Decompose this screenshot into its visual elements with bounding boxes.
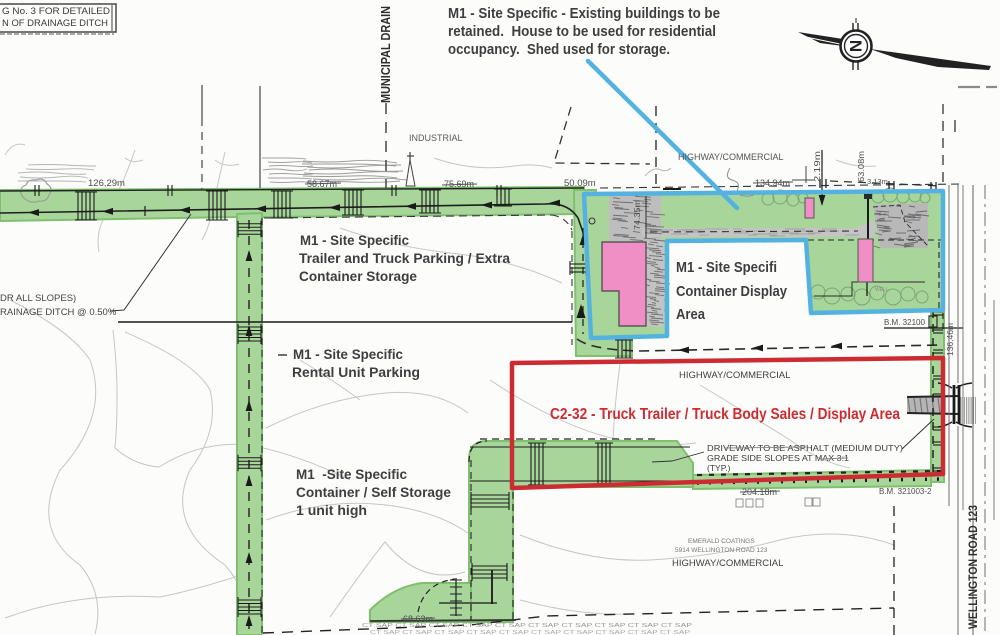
svg-text:GRADE SIDE SLOPES AT MAX 3:1: GRADE SIDE SLOPES AT MAX 3:1 <box>707 453 849 463</box>
svg-text:M1 -Site Specific: M1 -Site Specific <box>296 467 407 482</box>
svg-text:CT SAP CT SAP CT SAP CT SAP CT: CT SAP CT SAP CT SAP CT SAP CT SAP CT SA… <box>370 630 691 635</box>
svg-text:Container Display: Container Display <box>676 283 788 300</box>
svg-text:CT SAP CT SAP CT SAP CT SAP CT: CT SAP CT SAP CT SAP CT SAP CT SAP CT SA… <box>362 623 693 629</box>
svg-text:EMERALD COATINGS: EMERALD COATINGS <box>688 538 755 545</box>
svg-text:74.35m: 74.35m <box>632 200 642 230</box>
svg-text:126,29m: 126,29m <box>88 178 125 189</box>
svg-text:occupancy. Shed used for stor: occupancy. Shed used for storage. <box>448 42 670 58</box>
svg-text:G No. 3 FOR DETAILED: G No. 3 FOR DETAILED <box>2 6 110 17</box>
svg-text:3.13m: 3.13m <box>867 177 888 186</box>
svg-text:Container Storage: Container Storage <box>299 269 417 284</box>
svg-text:Rental Unit Parking: Rental Unit Parking <box>292 365 420 380</box>
svg-text:MUNICIPAL DRAIN: MUNICIPAL DRAIN <box>379 6 393 103</box>
svg-text:Container / Self Storage: Container / Self Storage <box>296 485 451 500</box>
svg-text:M1 - Site Specific: M1 - Site Specific <box>293 347 403 362</box>
svg-text:WELLINGTON ROAD 123: WELLINGTON ROAD 123 <box>968 505 980 629</box>
svg-text:50.09m: 50.09m <box>564 178 596 189</box>
svg-text:HIGHWAY/COMMERCIAL: HIGHWAY/COMMERCIAL <box>672 558 783 569</box>
svg-text:M1 - Site Specifi: M1 - Site Specifi <box>676 259 777 276</box>
svg-text:INDUSTRIAL: INDUSTRIAL <box>409 133 463 143</box>
svg-text:RAINAGE DITCH @ 0.50%: RAINAGE DITCH @ 0.50% <box>0 307 117 318</box>
svg-text:B.M. 32100: B.M. 32100 <box>884 318 925 327</box>
svg-text:N OF DRAINAGE DITCH: N OF DRAINAGE DITCH <box>2 18 108 29</box>
svg-text:M1 - Site Specific: M1 - Site Specific <box>300 233 409 248</box>
svg-text:63.08m: 63.08m <box>856 151 866 182</box>
svg-text:retained. House to be used fo: retained. House to be used for residenti… <box>448 24 716 40</box>
svg-text:C2-32 - Truck Trailer / Truck: C2-32 - Truck Trailer / Truck Body Sales… <box>550 406 900 423</box>
svg-text:136.46m: 136.46m <box>946 323 955 356</box>
svg-text:M1 - Site Specific - Existing: M1 - Site Specific - Existing buildings … <box>448 6 720 22</box>
svg-text:Trailer and Truck Parking / Ex: Trailer and Truck Parking / Extra <box>299 251 510 266</box>
svg-text:Area: Area <box>676 306 706 323</box>
svg-text:DR ALL SLOPES): DR ALL SLOPES) <box>0 293 76 304</box>
svg-text:1 unit high: 1 unit high <box>296 503 367 518</box>
svg-text:2.19m: 2.19m <box>812 151 822 182</box>
svg-text:B.M. 321003-2: B.M. 321003-2 <box>879 487 932 496</box>
svg-text:N: N <box>847 40 866 52</box>
svg-text:(TYP.): (TYP.) <box>707 463 731 473</box>
svg-text:HIGHWAY/COMMERCIAL: HIGHWAY/COMMERCIAL <box>679 370 790 381</box>
svg-text:WELL: WELL <box>875 287 889 293</box>
svg-text:5914 WELLINGTON ROAD 123: 5914 WELLINGTON ROAD 123 <box>675 547 768 554</box>
svg-text:HIGHWAY/COMMERCIAL: HIGHWAY/COMMERCIAL <box>678 152 784 162</box>
